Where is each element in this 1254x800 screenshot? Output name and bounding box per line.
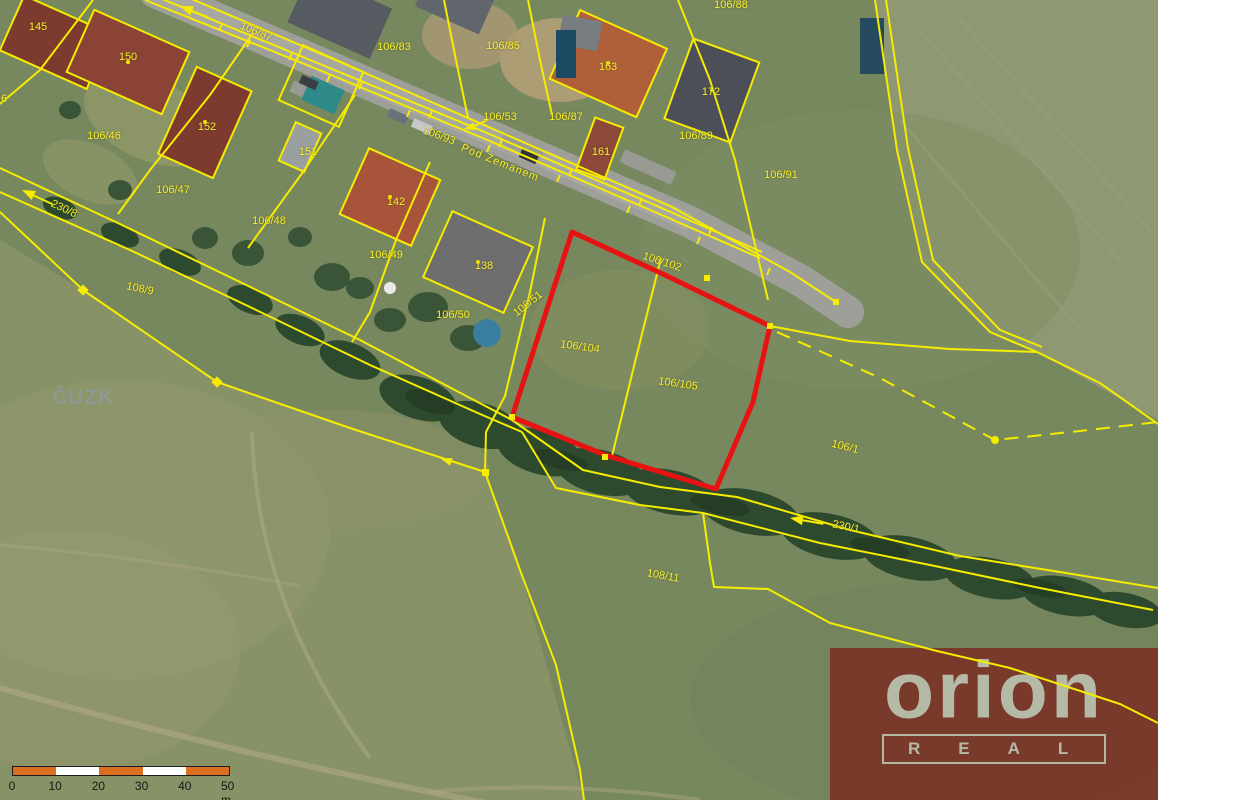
cadastral-overlay (0, 0, 1158, 800)
scale-bar-label: 20 (92, 779, 105, 793)
scale-bar-segment (143, 767, 186, 775)
boundary-106-104-105 (612, 258, 661, 456)
road-boundary-south (180, 0, 836, 302)
arrow-108-boundary (439, 454, 453, 465)
map-screenshot: orion REAL ČUZK (0, 0, 1254, 800)
stream-230-1 (512, 420, 1158, 610)
field-boundary-108-9 (0, 212, 485, 472)
scale-bar-label: 50 m (221, 779, 235, 800)
stream-230-8 (0, 168, 522, 432)
parcel-boundaries-northeast (678, 0, 1042, 352)
scale-bar-segment (99, 767, 142, 775)
vertex-markers (77, 60, 999, 476)
dashed-boundary (777, 332, 1158, 440)
scale-bar: 01020304050 m (12, 766, 242, 794)
parcel-boundaries-residential (0, 0, 552, 472)
scale-bar-label: 30 (135, 779, 148, 793)
scale-bar-segment (56, 767, 99, 775)
field-boundary-106-1 (770, 326, 1158, 440)
scale-bar-segments (12, 766, 230, 776)
scale-bar-labels: 01020304050 m (12, 779, 242, 794)
scale-bar-label: 10 (49, 779, 62, 793)
road-boundary-north (145, 0, 762, 258)
scale-bar-segment (186, 767, 229, 775)
direction-arrows (20, 1, 824, 528)
scale-bar-label: 40 (178, 779, 191, 793)
scale-bar-label: 0 (9, 779, 16, 793)
empty-right-margin (1158, 0, 1254, 800)
highlighted-parcel-outline (512, 232, 770, 489)
scale-bar-segment (13, 767, 56, 775)
aerial-map: orion REAL ČUZK (0, 0, 1158, 800)
arrow-230-8 (20, 185, 55, 208)
